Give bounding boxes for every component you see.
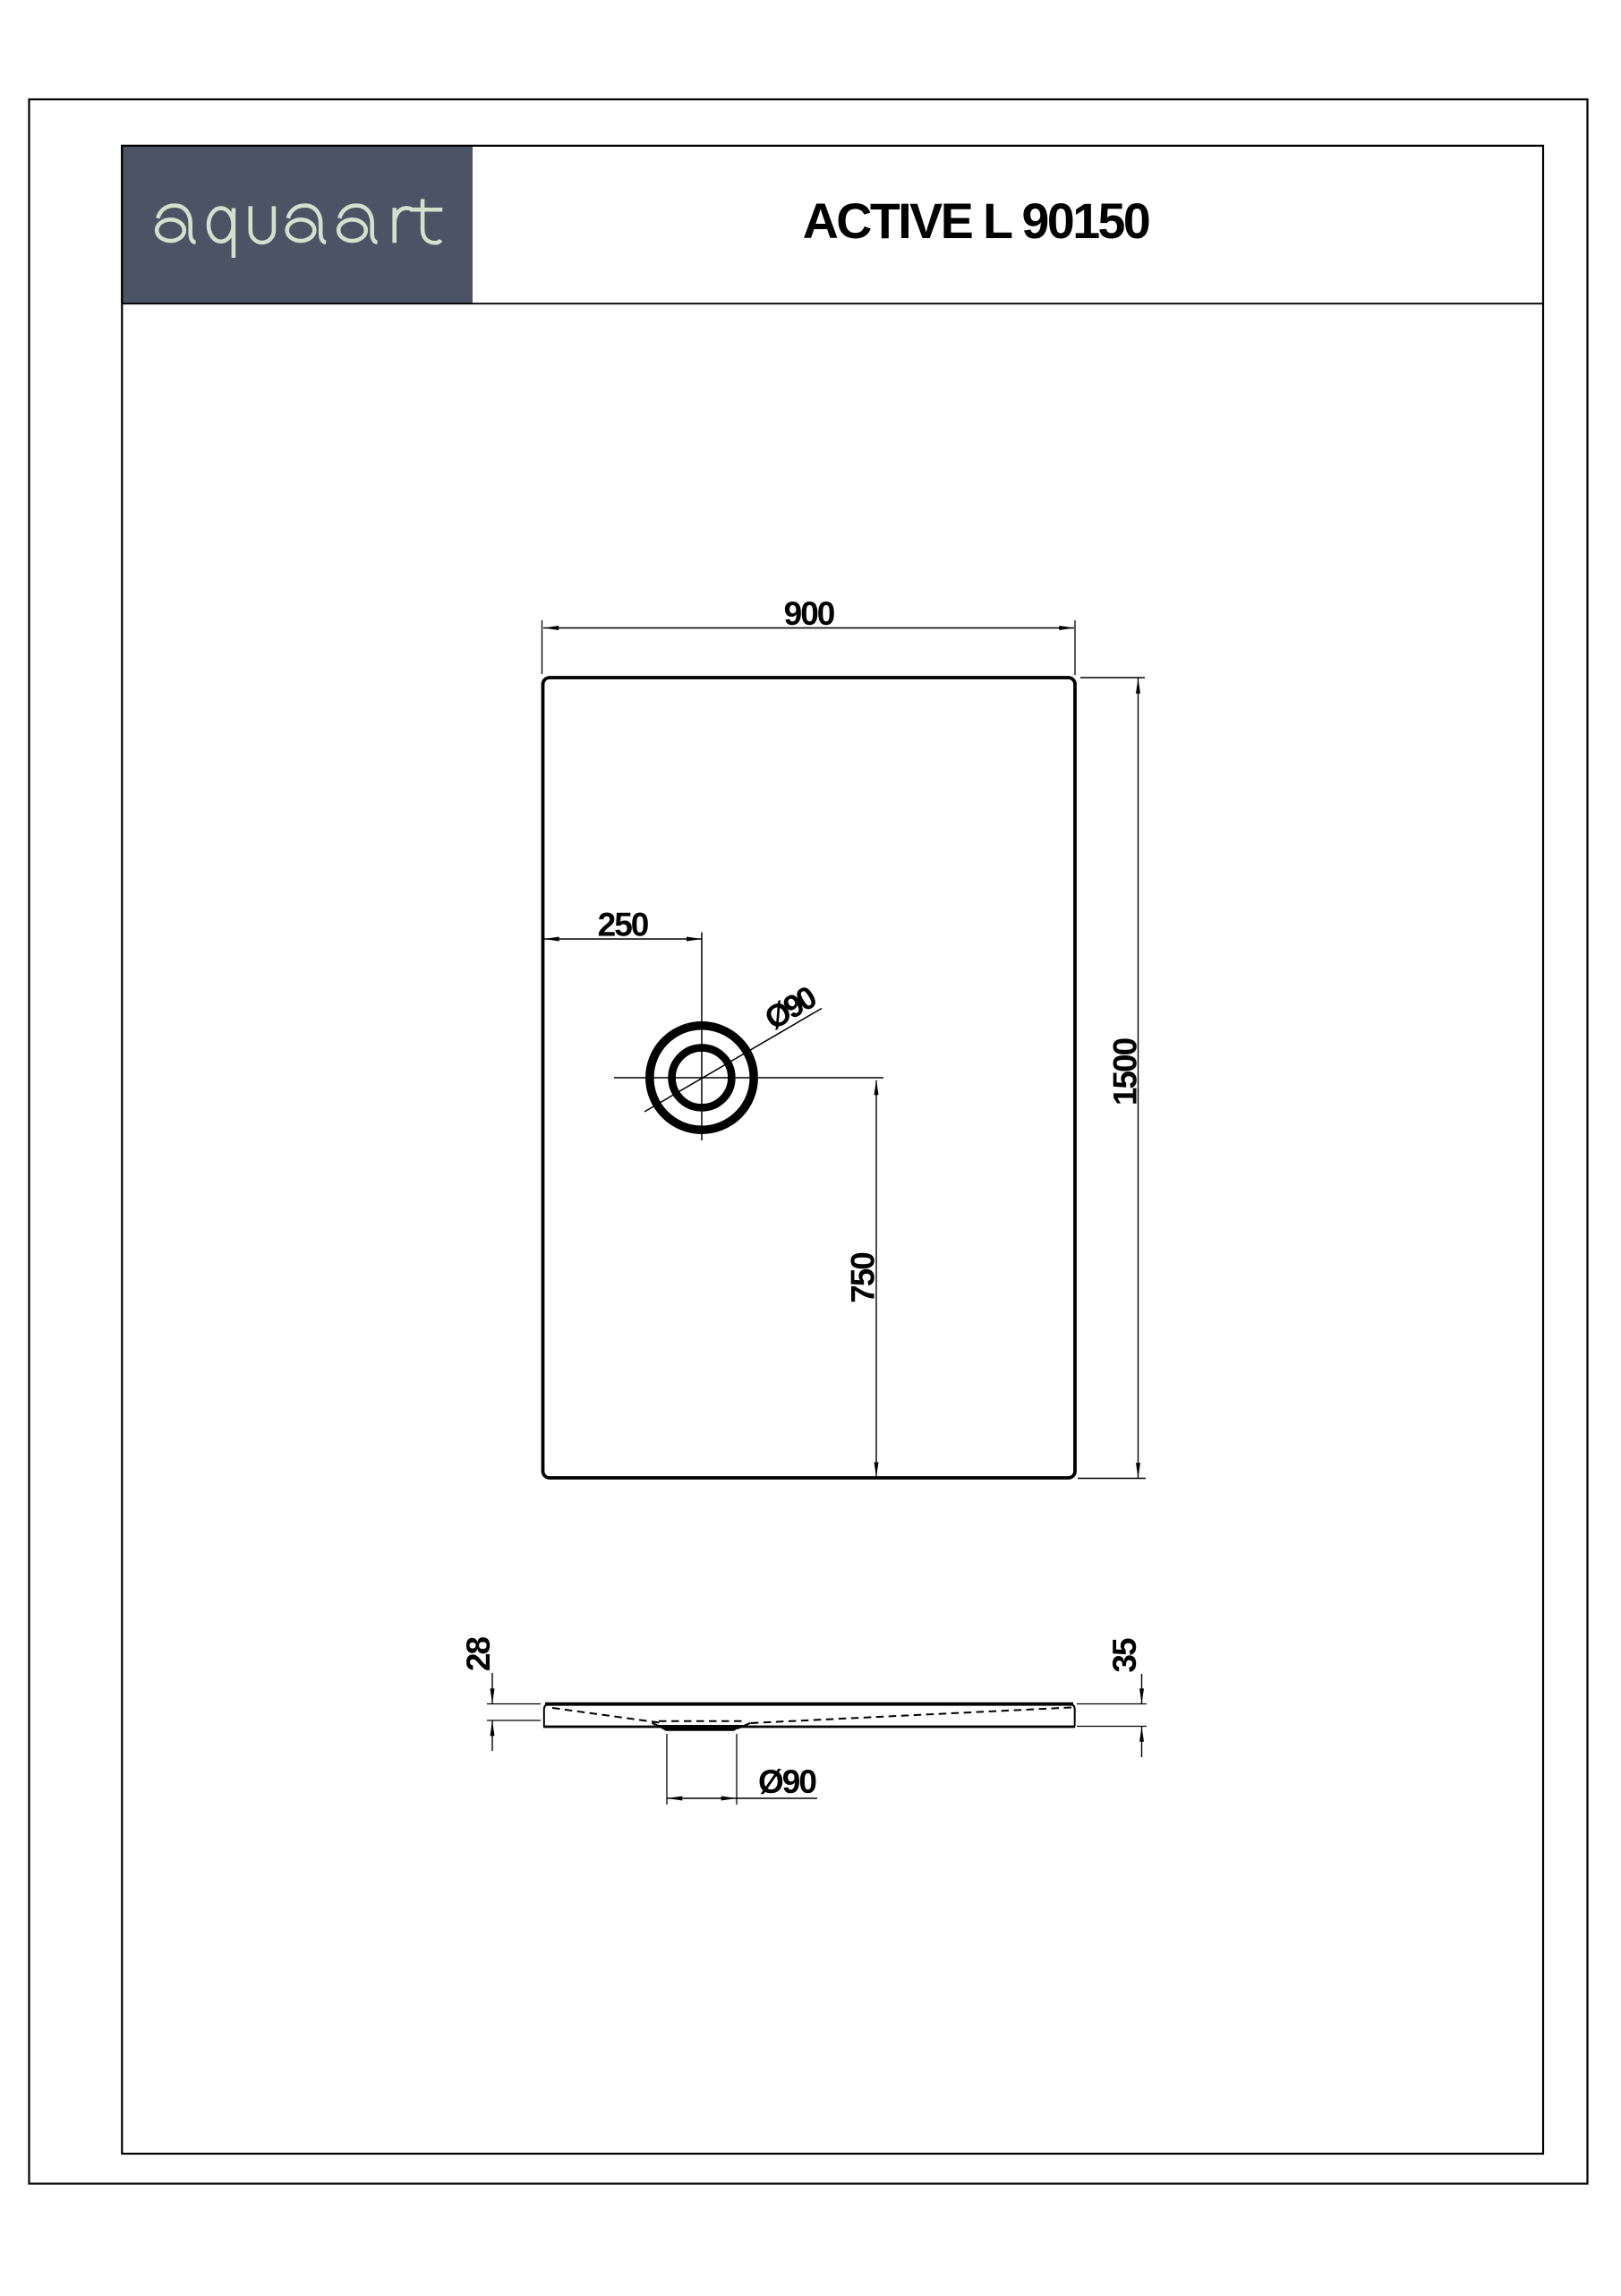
svg-text:35: 35 <box>1106 1638 1143 1673</box>
svg-text:250: 250 <box>598 907 649 943</box>
svg-text:Ø90: Ø90 <box>758 1763 816 1800</box>
svg-text:900: 900 <box>784 595 835 632</box>
svg-text:Ø90: Ø90 <box>758 979 822 1037</box>
svg-text:1500: 1500 <box>1107 1037 1144 1105</box>
svg-text:ACTIVE L 90150: ACTIVE L 90150 <box>803 193 1149 249</box>
svg-text:750: 750 <box>845 1252 882 1303</box>
svg-text:28: 28 <box>460 1637 497 1672</box>
